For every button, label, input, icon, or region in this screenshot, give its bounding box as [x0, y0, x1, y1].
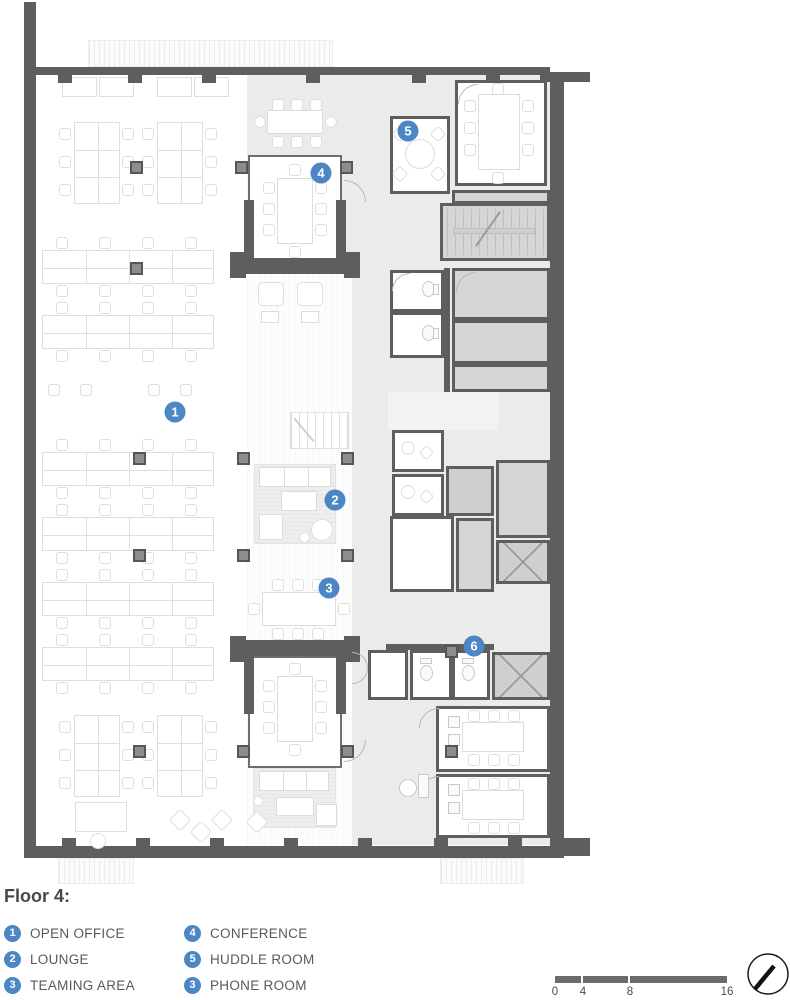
chair [522, 100, 534, 112]
office-chair [99, 552, 111, 564]
structural-column [130, 161, 143, 174]
legend-title: Floor 4: [4, 886, 70, 907]
scale-bar-segment [555, 976, 581, 983]
office-chair [142, 682, 154, 694]
office-chair [56, 617, 68, 629]
exterior-canopy-bottom-left [58, 858, 134, 884]
chair [492, 172, 504, 184]
ottoman [299, 532, 310, 543]
armchair [258, 282, 284, 306]
side-table [316, 804, 337, 826]
desk-cluster [42, 647, 214, 681]
scale-bar-segment [583, 976, 628, 983]
side-table [259, 514, 283, 540]
credenza [448, 802, 460, 814]
wall-pilaster [210, 838, 224, 846]
chair [315, 182, 327, 194]
chair [508, 710, 520, 722]
structural-column [235, 161, 248, 174]
chair [508, 754, 520, 766]
coffee-table [281, 491, 317, 511]
office-chair [56, 302, 68, 314]
chair [464, 144, 476, 156]
office-chair [99, 302, 111, 314]
wall-pilaster [486, 75, 500, 83]
structural-column [341, 745, 354, 758]
chair [263, 701, 275, 713]
structural-column [237, 452, 250, 465]
chair [488, 822, 500, 834]
office-chair [142, 634, 154, 646]
restroom-gray-3 [452, 364, 550, 392]
chair [468, 754, 480, 766]
round-chair [311, 519, 333, 541]
toilet-tank [433, 328, 439, 339]
office-chair [99, 285, 111, 297]
chair [289, 164, 301, 176]
chair [310, 136, 322, 148]
armchair [297, 282, 323, 306]
office-chair [180, 384, 192, 396]
office-chair [99, 617, 111, 629]
plan-marker-3: 3 [319, 578, 340, 599]
legend-badge: 5 [184, 951, 201, 968]
chair [488, 754, 500, 766]
office-chair [56, 569, 68, 581]
office-chair [122, 184, 134, 196]
office-chair [142, 128, 154, 140]
chair [508, 822, 520, 834]
office-chair [185, 682, 197, 694]
chair [263, 224, 275, 236]
wall-left [24, 2, 36, 858]
credenza [448, 784, 460, 796]
side-wall [244, 652, 254, 714]
desk-cluster [74, 122, 120, 204]
exterior-canopy-bottom-right [440, 858, 524, 884]
phone-room-2 [392, 474, 444, 516]
desk-cluster [74, 715, 120, 797]
toilet-tank [420, 658, 432, 664]
chair [248, 603, 260, 615]
legend-label: HUDDLE ROOM [210, 952, 315, 967]
office-chair [205, 721, 217, 733]
office-chair [59, 156, 71, 168]
chair [263, 182, 275, 194]
office-chair [99, 237, 111, 249]
desk-cluster [42, 452, 214, 486]
office-chair [142, 285, 154, 297]
office-chair [142, 721, 154, 733]
office-chair [99, 569, 111, 581]
conference-table [462, 790, 524, 820]
chair [291, 99, 303, 111]
phone-room-1 [392, 430, 444, 472]
legend-item: 2LOUNGE [4, 950, 89, 968]
office-chair [122, 128, 134, 140]
ottoman [253, 796, 263, 806]
chair [291, 136, 303, 148]
legend-badge: 4 [184, 925, 201, 942]
side-table [261, 311, 279, 323]
chair [468, 710, 480, 722]
desk [157, 77, 192, 97]
wall-pilaster [508, 838, 522, 846]
office-chair [185, 552, 197, 564]
chair [468, 822, 480, 834]
office-chair [99, 439, 111, 451]
toilet [462, 665, 475, 681]
wall-pilaster [358, 838, 372, 846]
legend-item: 4CONFERENCE [184, 924, 308, 942]
chair [289, 663, 301, 675]
plan-marker-6: 6 [464, 636, 485, 657]
legend-badge: 3 [184, 977, 201, 994]
office-chair [142, 237, 154, 249]
chair [464, 122, 476, 134]
structural-column [237, 549, 250, 562]
office-chair [205, 184, 217, 196]
flange-cap [344, 252, 360, 278]
office-chair [142, 777, 154, 789]
legend-label: TEAMING AREA [30, 978, 135, 993]
office-chair [59, 184, 71, 196]
office-chair [99, 634, 111, 646]
toilet [420, 665, 433, 681]
coffee-table [276, 797, 314, 816]
office-chair [185, 302, 197, 314]
structural-column [341, 549, 354, 562]
chair [315, 224, 327, 236]
wall-pilaster [434, 838, 448, 846]
scale-tick-label: 4 [580, 986, 586, 998]
desk-cluster [42, 517, 214, 551]
office-chair [142, 302, 154, 314]
office-chair [56, 552, 68, 564]
support-room-white [390, 516, 454, 592]
legend-label: PHONE ROOM [210, 978, 307, 993]
legend-label: LOUNGE [30, 952, 89, 967]
chair [272, 99, 284, 111]
desk-cluster [42, 582, 214, 616]
chair [522, 122, 534, 134]
office-chair [56, 237, 68, 249]
floor-plan-sheet: 123456 Floor 4: 1OPEN OFFICE2LOUNGE3TEAM… [0, 0, 790, 1000]
plan-marker-5: 5 [398, 121, 419, 142]
office-chair [185, 285, 197, 297]
office-chair [142, 439, 154, 451]
conference-table [267, 110, 323, 134]
wc-room-a [368, 650, 408, 700]
wall-pilaster [284, 838, 298, 846]
wall-top-right-flange [540, 72, 590, 82]
office-chair [142, 504, 154, 516]
conference-table [277, 676, 313, 742]
restroom-divider-wall [444, 268, 450, 392]
plan-marker-2: 2 [325, 490, 346, 511]
structural-column [130, 262, 143, 275]
stair-direction-line [294, 418, 314, 442]
wall-pilaster [136, 838, 150, 846]
wall-pilaster [58, 75, 72, 83]
chair [254, 116, 266, 128]
stool [401, 441, 415, 455]
chair [310, 99, 322, 111]
conference-table [462, 722, 524, 752]
desk-cluster [157, 122, 203, 204]
shaft-room [446, 466, 494, 516]
service-room-mid [496, 460, 550, 538]
office-chair [59, 128, 71, 140]
office-chair [56, 504, 68, 516]
office-chair [99, 487, 111, 499]
office-chair [185, 487, 197, 499]
conference-table [277, 178, 313, 244]
plan-marker-1: 1 [165, 402, 186, 423]
office-chair [205, 128, 217, 140]
standing-desk [418, 774, 429, 798]
office-chair [56, 285, 68, 297]
side-wall [336, 652, 346, 714]
office-chair [48, 384, 60, 396]
wall-pilaster [128, 75, 142, 83]
scale-bar-segment [630, 976, 727, 983]
chair [315, 680, 327, 692]
office-chair [185, 237, 197, 249]
north-arrow-icon [746, 952, 790, 996]
chair [338, 603, 350, 615]
scale-tick-label: 8 [627, 986, 633, 998]
wall-pilaster [306, 75, 320, 83]
wall-pilaster [62, 838, 76, 846]
office-chair [80, 384, 92, 396]
chair [272, 628, 284, 640]
office-chair [142, 617, 154, 629]
toilet-tank [433, 284, 439, 295]
legend-badge: 1 [4, 925, 21, 942]
legend-item: 1OPEN OFFICE [4, 924, 125, 942]
office-chair [185, 504, 197, 516]
desk-cluster [42, 250, 214, 284]
office-chair [56, 439, 68, 451]
legend: Floor 4: 1OPEN OFFICE2LOUNGE3TEAMING ARE… [4, 884, 404, 996]
plan-marker-4: 4 [311, 163, 332, 184]
legend-item: 3TEAMING AREA [4, 976, 135, 994]
sofa [259, 771, 329, 791]
huddle-table [405, 139, 435, 169]
credenza [448, 716, 460, 728]
side-table [301, 311, 319, 323]
structural-column [340, 161, 353, 174]
chair [272, 579, 284, 591]
office-chair [185, 350, 197, 362]
wall-pilaster [412, 75, 426, 83]
office-chair [99, 350, 111, 362]
wall-bottom-right-flange [564, 838, 590, 856]
office-chair [122, 721, 134, 733]
structural-column [237, 745, 250, 758]
office-chair [142, 184, 154, 196]
exterior-canopy-top [88, 40, 333, 67]
chair [468, 778, 480, 790]
office-chair [142, 350, 154, 362]
office-chair [185, 569, 197, 581]
desk-cluster [157, 715, 203, 797]
structural-column [133, 549, 146, 562]
toilet-tank [462, 658, 474, 664]
structural-column [445, 745, 458, 758]
chair [488, 778, 500, 790]
structural-column [133, 452, 146, 465]
elevator-1 [496, 540, 550, 584]
office-chair [185, 617, 197, 629]
chair [263, 680, 275, 692]
cross-corridor [388, 392, 498, 430]
office-chair [142, 487, 154, 499]
chair [488, 710, 500, 722]
wall-bottom [24, 846, 564, 858]
office-chair [185, 439, 197, 451]
conference-table [478, 94, 520, 170]
chair [464, 100, 476, 112]
chair [522, 144, 534, 156]
sofa [259, 467, 331, 487]
office-chair [59, 721, 71, 733]
office-chair [59, 749, 71, 761]
office-chair [148, 384, 160, 396]
office-chair [56, 487, 68, 499]
chair [272, 136, 284, 148]
desk-cluster [42, 315, 214, 349]
office-chair [142, 156, 154, 168]
round-table [399, 779, 417, 797]
office-chair [122, 777, 134, 789]
chair [315, 722, 327, 734]
office-chair [205, 777, 217, 789]
chair [325, 116, 337, 128]
chair [289, 246, 301, 258]
service-room-low [456, 518, 494, 592]
scale-tick-label: 0 [552, 986, 558, 998]
office-chair [142, 569, 154, 581]
chair [492, 83, 504, 95]
wall-top [36, 67, 550, 75]
office-chair [56, 350, 68, 362]
legend-badge: 3 [4, 977, 21, 994]
legend-item: 5HUDDLE ROOM [184, 950, 315, 968]
side-wall [244, 200, 254, 262]
office-chair [56, 682, 68, 694]
stair-landing-band [452, 190, 550, 204]
chair [315, 203, 327, 215]
chair [292, 579, 304, 591]
structural-column [133, 745, 146, 758]
stair-rail [453, 228, 535, 234]
side-wall [336, 200, 346, 262]
interior-stair [290, 412, 349, 449]
office-chair [56, 634, 68, 646]
structural-column [445, 645, 458, 658]
elevator-2 [492, 652, 550, 700]
restroom-gray-2 [452, 320, 550, 364]
legend-badge: 2 [4, 951, 21, 968]
stairwell [440, 203, 550, 261]
structural-column [341, 452, 354, 465]
legend-item: 3PHONE ROOM [184, 976, 307, 994]
chair [263, 722, 275, 734]
office-chair [205, 749, 217, 761]
stool [401, 485, 415, 499]
wall-pilaster [202, 75, 216, 83]
office-chair [205, 156, 217, 168]
round-chair [90, 833, 106, 849]
wall-right [550, 72, 564, 858]
chair [312, 628, 324, 640]
office-chair [59, 777, 71, 789]
chair [292, 628, 304, 640]
chair [289, 744, 301, 756]
office-chair [185, 634, 197, 646]
legend-label: CONFERENCE [210, 926, 308, 941]
chair [508, 778, 520, 790]
chair [315, 701, 327, 713]
legend-label: OPEN OFFICE [30, 926, 125, 941]
chair [263, 203, 275, 215]
office-chair [99, 682, 111, 694]
desk [75, 802, 127, 832]
office-chair [99, 504, 111, 516]
scale-tick-label: 16 [721, 986, 734, 998]
